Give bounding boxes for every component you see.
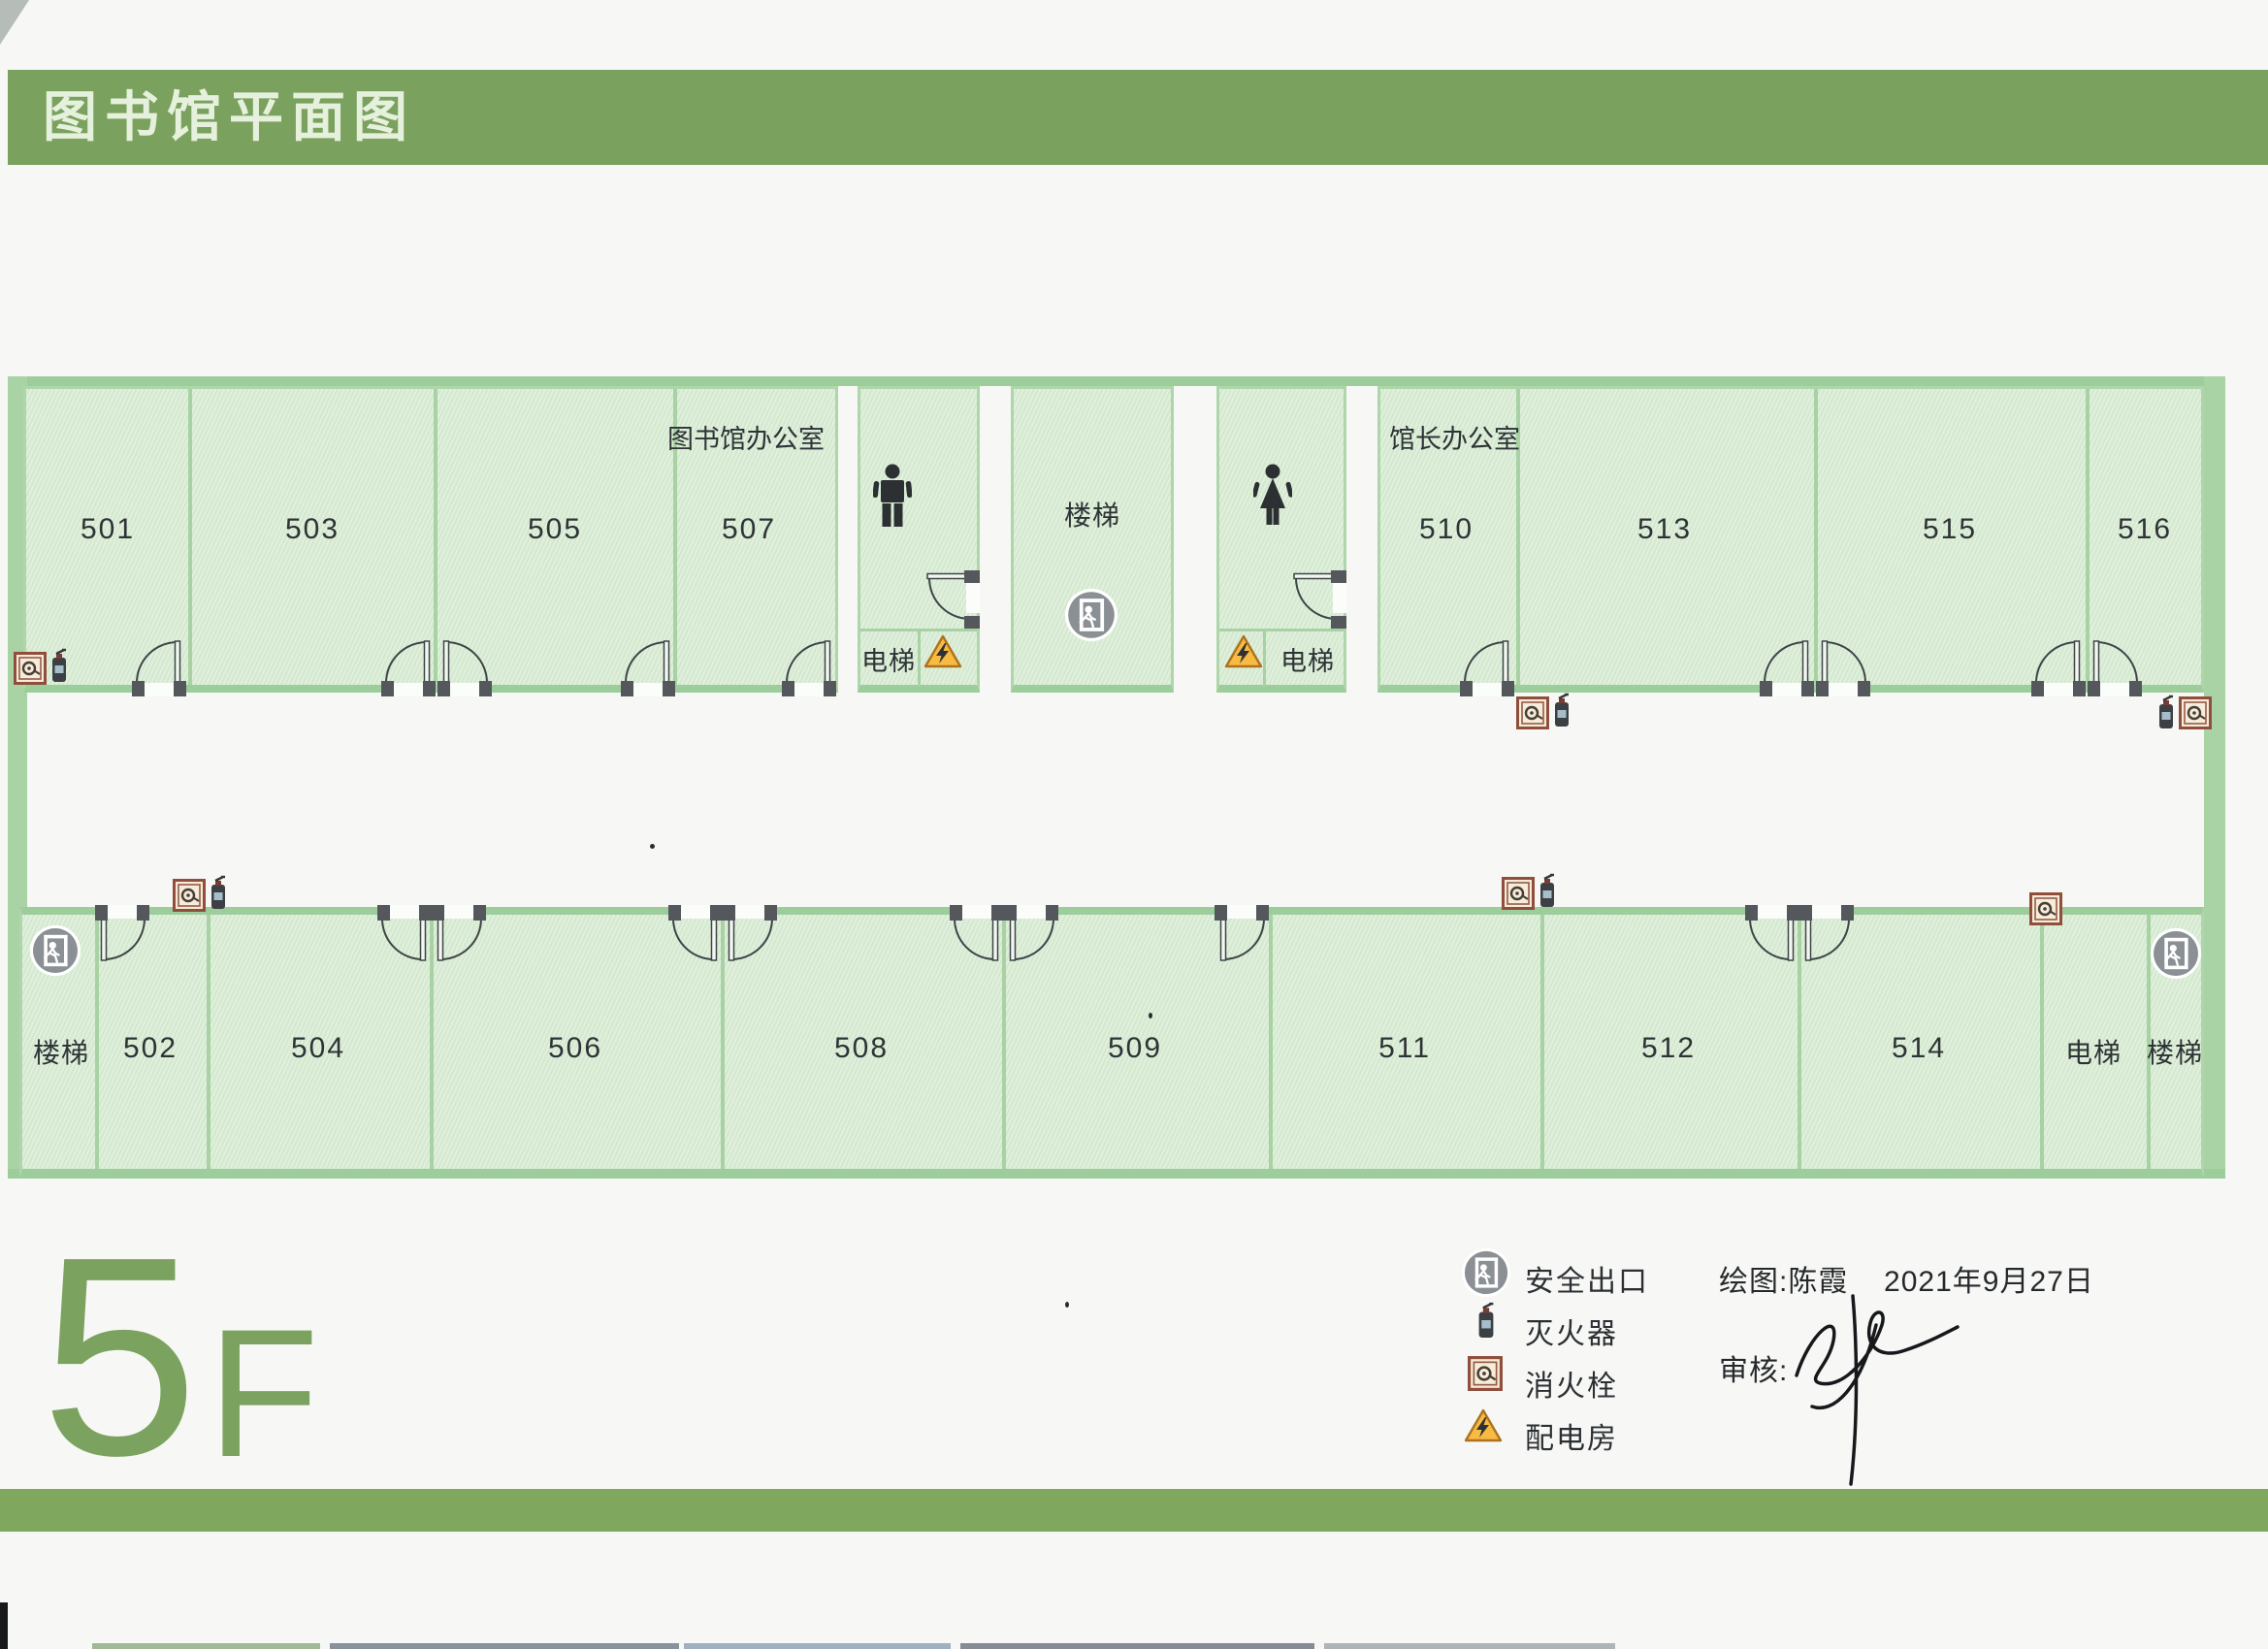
- library-office-label: 图书馆办公室: [667, 418, 825, 456]
- door-503: [381, 636, 436, 696]
- elevator-label-bottom: 电梯: [2065, 1032, 2122, 1071]
- wall-divider: [1269, 915, 1273, 1169]
- scanned-floor-plan-page: 图书馆平面图 501 503 505 507 图书馆办公室 电梯 楼梯 电梯 馆…: [0, 0, 2268, 1649]
- stairs-label-bottom-left: 楼梯: [33, 1032, 89, 1071]
- scan-edge-artifact: [960, 1643, 1314, 1649]
- room-label-504: 504: [291, 1032, 345, 1065]
- floor-number: 5: [41, 1214, 198, 1498]
- room-label-515: 515: [1923, 513, 1977, 546]
- stairs-label-bottom-right: 楼梯: [2147, 1032, 2203, 1071]
- elevator-label-right: 电梯: [1280, 640, 1335, 678]
- fire-hydrant-icon: [1468, 1356, 1503, 1391]
- elevator-label-left: 电梯: [861, 640, 916, 678]
- door-505-right: [621, 636, 675, 696]
- power-room-icon: [1224, 634, 1263, 669]
- fire-hydrant-icon: [2179, 696, 2212, 729]
- title-banner: 图书馆平面图: [8, 70, 2268, 165]
- room-label-503: 503: [285, 513, 340, 546]
- bottom-green-bar: [0, 1489, 2268, 1532]
- exit-icon: [29, 924, 81, 977]
- wall-divider: [1540, 915, 1544, 1169]
- fire-extinguisher-icon: [1476, 1302, 1496, 1339]
- female-toilet-icon: [1253, 464, 1292, 528]
- room-label-502: 502: [123, 1032, 178, 1065]
- fire-extinguisher-icon: [210, 875, 227, 910]
- door-515-right: [2031, 636, 2086, 696]
- fire-extinguisher-icon: [2157, 695, 2175, 729]
- scan-edge-artifact: [330, 1643, 679, 1649]
- scan-edge-artifact: [1324, 1643, 1615, 1649]
- room-label-516: 516: [2118, 513, 2172, 546]
- scan-edge-artifact: [92, 1643, 320, 1649]
- fire-hydrant-icon: [1502, 877, 1535, 910]
- legend-label-extinguisher: 灭火器: [1525, 1309, 1618, 1352]
- door-515-left: [1816, 636, 1870, 696]
- fire-extinguisher-icon: [50, 648, 68, 683]
- power-room-icon: [1464, 1408, 1503, 1443]
- door-512: [1745, 905, 1799, 965]
- room-label-511: 511: [1378, 1032, 1431, 1065]
- stairs-label-top: 楼梯: [1064, 495, 1120, 533]
- door-502: [95, 905, 149, 965]
- room-label-501: 501: [81, 513, 135, 546]
- wall-divider: [1219, 629, 1344, 631]
- wall-divider: [1263, 631, 1266, 687]
- door-male-toilet: [922, 570, 980, 629]
- fire-hydrant-icon: [2029, 892, 2062, 925]
- scan-edge-artifact: [0, 1602, 8, 1649]
- door-516: [2088, 636, 2142, 696]
- scan-speck: [1065, 1302, 1069, 1308]
- scan-corner-artifact: [0, 0, 29, 45]
- room-label-509: 509: [1108, 1032, 1162, 1065]
- stairs-block-top: [1011, 386, 1174, 693]
- room-label-505: 505: [528, 513, 582, 546]
- exit-icon: [1064, 588, 1118, 642]
- door-514: [1799, 905, 1854, 965]
- door-513: [1760, 636, 1814, 696]
- power-room-icon: [923, 634, 962, 669]
- fire-hydrant-icon: [14, 652, 47, 685]
- wall-divider: [918, 631, 921, 687]
- wall-divider: [207, 915, 211, 1169]
- male-toilet-icon: [873, 464, 912, 528]
- fire-extinguisher-icon: [1553, 693, 1571, 727]
- room-label-508: 508: [834, 1032, 889, 1065]
- room-label-507: 507: [722, 513, 776, 546]
- wall-divider: [188, 389, 192, 685]
- door-508-left: [723, 905, 777, 965]
- top-outer-wall: [8, 376, 2225, 386]
- door-506-left: [432, 905, 486, 965]
- wall-divider: [2040, 915, 2044, 1169]
- page-title: 图书馆平面图: [43, 70, 415, 165]
- room-label-510: 510: [1419, 513, 1474, 546]
- fire-hydrant-icon: [173, 879, 206, 912]
- legend-label-power-room: 配电房: [1525, 1414, 1618, 1457]
- room-label-512: 512: [1641, 1032, 1696, 1065]
- door-508-right: [950, 905, 1004, 965]
- door-female-toilet: [1288, 570, 1346, 629]
- right-outer-wall: [2204, 376, 2225, 1179]
- door-501: [132, 636, 186, 696]
- room-label-514: 514: [1892, 1032, 1946, 1065]
- legend-label-exit: 安全出口: [1525, 1257, 1649, 1300]
- scan-speck: [650, 844, 655, 849]
- reviewer-signature: [1783, 1282, 1977, 1496]
- room-label-506: 506: [548, 1032, 602, 1065]
- door-505-left: [437, 636, 492, 696]
- door-510: [1460, 636, 1514, 696]
- scan-speck: [1149, 1013, 1152, 1018]
- review-label: 审核:: [1719, 1346, 1788, 1389]
- room-label-513: 513: [1637, 513, 1692, 546]
- door-504: [377, 905, 432, 965]
- legend-label-hydrant: 消火栓: [1525, 1362, 1618, 1405]
- exit-icon: [1461, 1247, 1511, 1298]
- floor-letter: F: [208, 1302, 319, 1484]
- door-507: [782, 636, 836, 696]
- exit-icon: [2150, 927, 2202, 980]
- fire-extinguisher-icon: [1539, 873, 1556, 908]
- door-509-left: [1004, 905, 1058, 965]
- fire-hydrant-icon: [1516, 696, 1549, 729]
- door-506-right: [668, 905, 723, 965]
- scan-edge-artifact: [684, 1643, 951, 1649]
- door-509-right: [1215, 905, 1269, 965]
- director-office-label: 馆长办公室: [1389, 418, 1520, 456]
